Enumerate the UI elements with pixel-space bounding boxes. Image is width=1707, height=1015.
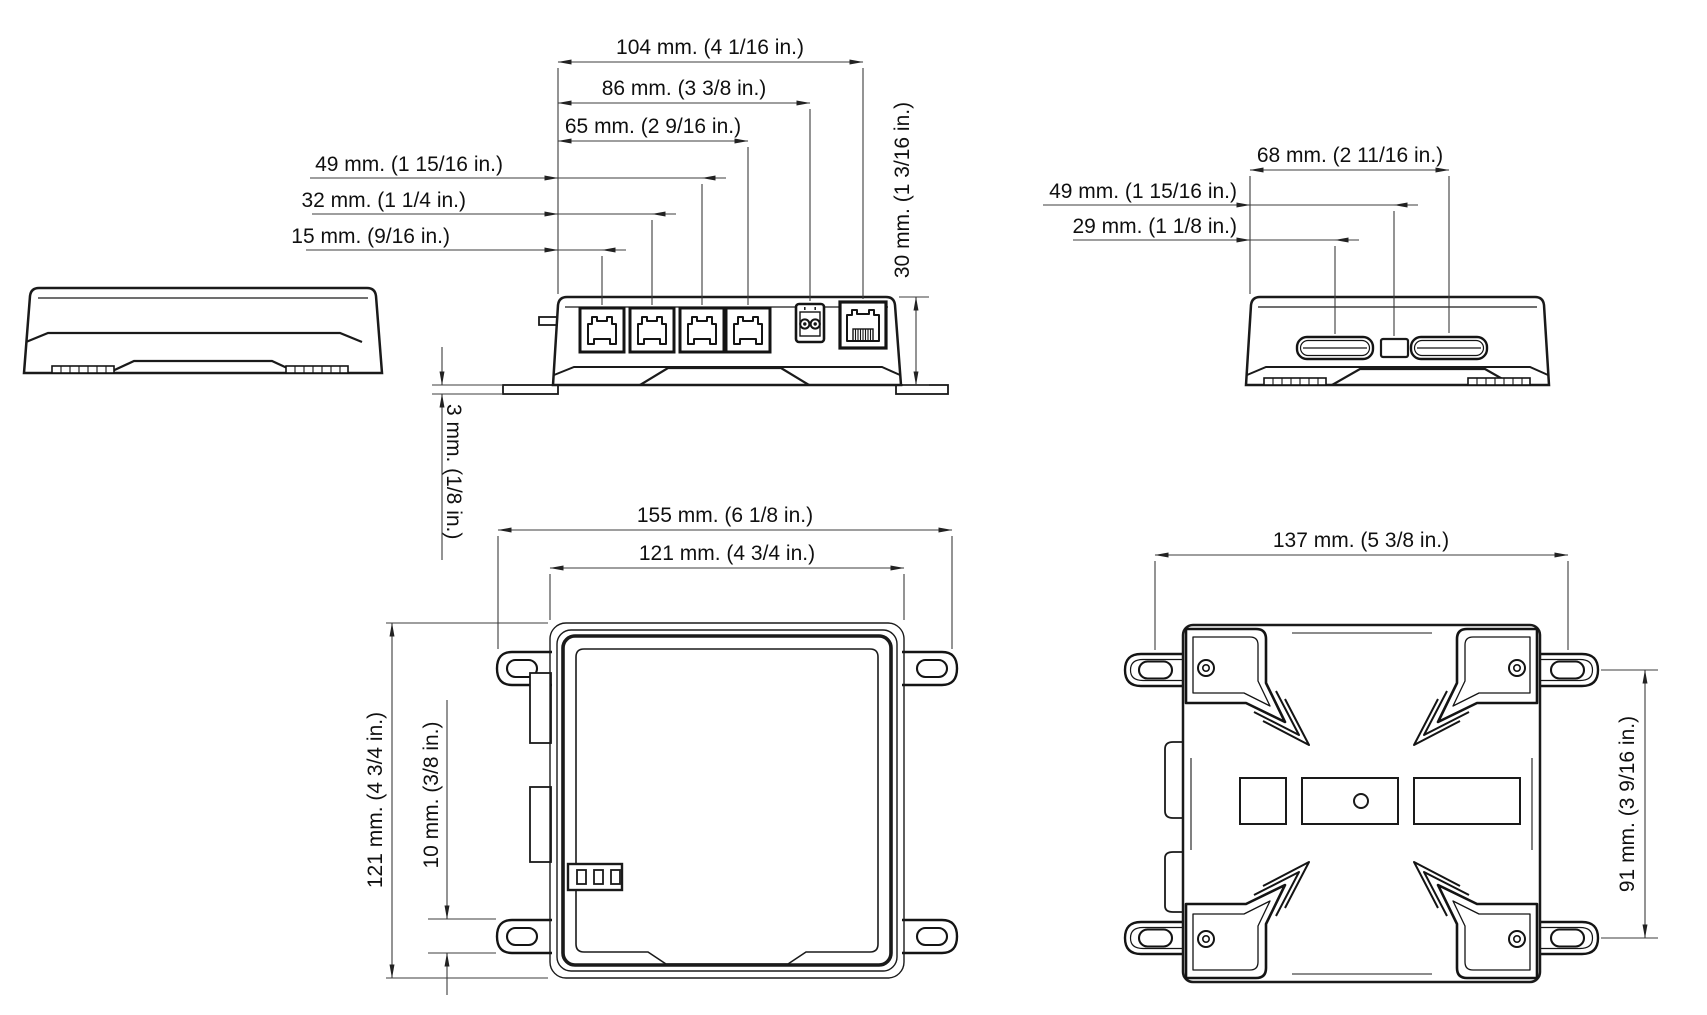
side-view: [1246, 297, 1549, 385]
vent-slot-right: [1411, 337, 1487, 359]
io-connector: [568, 864, 622, 890]
dim-121mm-width: 121 mm. (4 3/4 in.): [550, 542, 904, 620]
vent-slot-left: [1297, 337, 1373, 359]
dim-label-86: 86 mm. (3 3/8 in.): [602, 77, 767, 100]
dim-label-104: 104 mm. (4 1/16 in.): [616, 36, 804, 59]
rj45-uplink-port: [840, 302, 886, 348]
side-view-foot-left: [1264, 378, 1326, 385]
ext-lines: [899, 297, 929, 385]
dim-label-49-side: 49 mm. (1 15/16 in.): [1049, 180, 1237, 203]
dim-label-30: 30 mm. (1 3/16 in.): [891, 102, 914, 278]
ext-lines: [550, 574, 904, 620]
dim-label-121-height: 121 mm. (4 3/4 in.): [364, 712, 387, 888]
front-view-plate-left: [503, 385, 558, 394]
mount-ear-bottom-left: [497, 920, 552, 953]
center-button-recess: [1381, 339, 1408, 357]
front-view-plate-right: [896, 385, 948, 394]
dim-label-121-width: 121 mm. (4 3/4 in.): [639, 542, 815, 565]
dim-label-155: 155 mm. (6 1/8 in.): [637, 504, 813, 527]
bottom-ears-right: [1535, 654, 1598, 954]
dim-10mm: 10 mm. (3/8 in.): [420, 700, 496, 995]
power-terminal-block: [796, 304, 824, 342]
dim-label-137: 137 mm. (5 3/8 in.): [1273, 529, 1449, 552]
dim-104mm: 104 mm. (4 1/16 in.): [558, 36, 863, 299]
side-view-foot-right: [1468, 378, 1530, 385]
front-view: [503, 297, 948, 394]
bottom-ear-top-left: [1125, 654, 1188, 686]
dim-91mm: 91 mm. (3 9/16 in.): [1601, 670, 1658, 938]
bottom-view: [1125, 625, 1598, 982]
dim-label-49: 49 mm. (1 15/16 in.): [315, 153, 503, 176]
bottom-ear-top-right: [1535, 654, 1598, 686]
device-top-face: [563, 636, 891, 965]
rear-view-foot-right: [286, 366, 348, 373]
dim-label-3: 3 mm. (1/8 in.): [442, 404, 465, 539]
bottom-ear-bottom-right: [1535, 922, 1598, 954]
side-latch-lower: [530, 787, 551, 862]
rj-port-3: [680, 308, 724, 352]
mount-ear-top-right: [902, 652, 957, 685]
dim-65mm: 65 mm. (2 9/16 in.): [558, 115, 748, 305]
ext-ticks: [428, 919, 496, 953]
mount-ears-right: [902, 652, 957, 953]
technical-drawing-page: 104 mm. (4 1/16 in.) 86 mm. (3 3/8 in.) …: [0, 0, 1707, 1015]
left-bump-lower: [1165, 852, 1184, 912]
rj-port-1: [580, 308, 624, 352]
rj-port-2: [630, 308, 674, 352]
dim-label-65: 65 mm. (2 9/16 in.): [565, 115, 741, 138]
rear-view: [24, 288, 382, 373]
dim-label-10: 10 mm. (3/8 in.): [420, 721, 443, 868]
rear-view-foot-left: [52, 366, 114, 373]
side-latch-upper: [530, 673, 551, 743]
front-view-side-pin: [539, 317, 558, 325]
bottom-ear-bottom-left: [1125, 922, 1188, 954]
dim-label-29: 29 mm. (1 1/8 in.): [1072, 215, 1237, 238]
dimension-drawing-canvas: 104 mm. (4 1/16 in.) 86 mm. (3 3/8 in.) …: [0, 0, 1707, 1015]
top-mount-view: [497, 623, 957, 978]
dim-3mm-plate: 3 mm. (1/8 in.): [432, 347, 503, 560]
rj-port-4: [726, 308, 770, 352]
dim-label-32: 32 mm. (1 1/4 in.): [301, 189, 466, 212]
dim-label-91: 91 mm. (3 9/16 in.): [1616, 716, 1639, 892]
ext-ticks: [432, 385, 503, 394]
mount-ear-bottom-right: [902, 920, 957, 953]
dim-86mm: 86 mm. (3 3/8 in.): [558, 77, 810, 301]
left-bump-upper: [1165, 742, 1184, 818]
dim-155mm: 155 mm. (6 1/8 in.): [498, 504, 952, 649]
dim-label-68: 68 mm. (2 11/16 in.): [1257, 144, 1443, 167]
dim-label-15: 15 mm. (9/16 in.): [291, 225, 450, 248]
